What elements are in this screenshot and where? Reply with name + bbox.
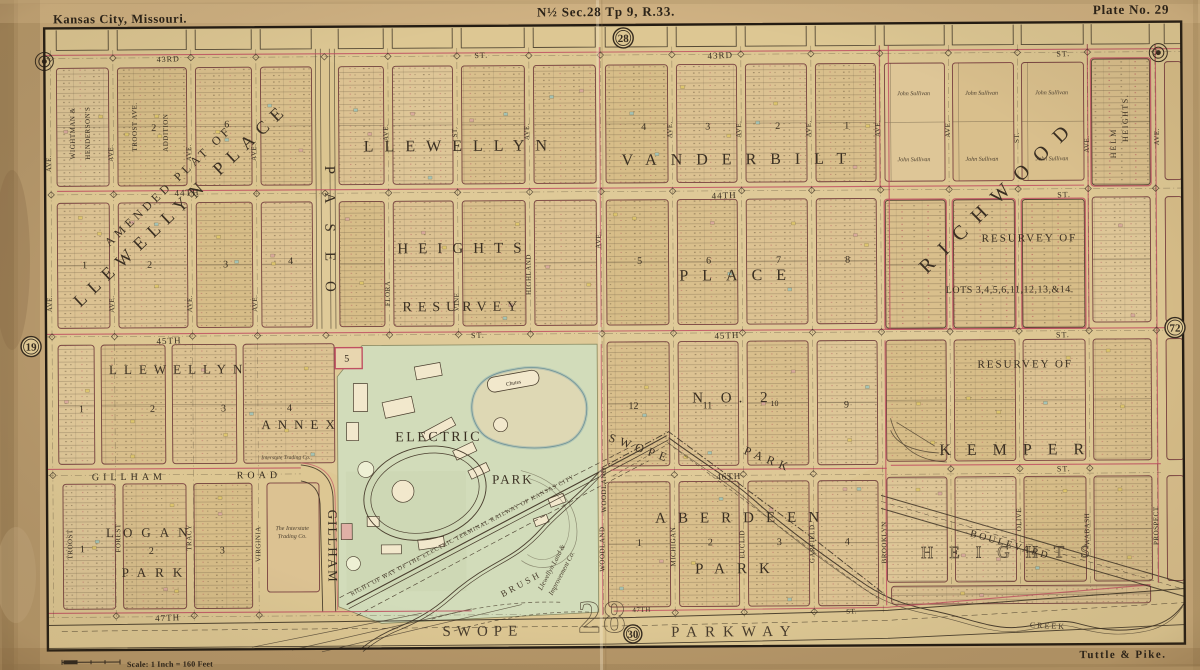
svg-text:10: 10 xyxy=(770,399,778,408)
svg-text:8: 8 xyxy=(845,255,850,266)
svg-text:47TH: 47TH xyxy=(155,612,180,623)
svg-text:AVE.: AVE. xyxy=(107,144,115,161)
svg-text:7: 7 xyxy=(776,255,781,266)
svg-text:AVE.: AVE. xyxy=(382,124,390,141)
svg-text:2: 2 xyxy=(708,537,713,548)
svg-text:HENDERSON'S: HENDERSON'S xyxy=(84,107,92,160)
svg-text:VINE: VINE xyxy=(453,293,461,312)
svg-text:PROSPECT: PROSPECT xyxy=(1152,506,1160,545)
svg-text:HELM: HELM xyxy=(1109,128,1118,159)
svg-text:28: 28 xyxy=(578,591,628,642)
svg-text:WABASH: WABASH xyxy=(1083,513,1091,546)
svg-text:TROOST AVE.: TROOST AVE. xyxy=(131,102,139,151)
svg-text:1: 1 xyxy=(79,404,84,415)
svg-text:AVE.: AVE. xyxy=(805,120,813,137)
svg-text:GARFIELD: GARFIELD xyxy=(808,524,816,563)
svg-text:28: 28 xyxy=(618,33,630,45)
svg-text:The Interstate: The Interstate xyxy=(275,526,309,532)
svg-text:RESURVEY OF: RESURVEY OF xyxy=(982,232,1078,245)
svg-text:PASEO: PASEO xyxy=(321,166,338,312)
svg-text:GILLHAM: GILLHAM xyxy=(92,472,166,483)
svg-text:PARK: PARK xyxy=(695,561,782,578)
svg-text:5: 5 xyxy=(637,256,642,267)
svg-text:AVE.: AVE. xyxy=(46,295,54,312)
svg-text:ANNEX: ANNEX xyxy=(261,417,342,432)
svg-text:3: 3 xyxy=(705,121,710,132)
svg-text:46TH: 46TH xyxy=(716,471,741,482)
svg-text:Plate No. 29: Plate No. 29 xyxy=(1093,2,1169,17)
svg-text:CREEK: CREEK xyxy=(1030,621,1067,632)
svg-text:MICHIGAN: MICHIGAN xyxy=(669,527,677,567)
svg-text:PLACE: PLACE xyxy=(679,267,800,285)
svg-text:WIGHTMAN &: WIGHTMAN & xyxy=(69,107,77,159)
svg-text:PARK: PARK xyxy=(492,471,534,486)
svg-text:LOTS 3,4,5,6,11,12,13,&14.: LOTS 3,4,5,6,11,12,13,&14. xyxy=(946,284,1074,296)
svg-text:6: 6 xyxy=(706,255,711,266)
svg-text:4: 4 xyxy=(288,256,293,267)
svg-text:John Sullivan: John Sullivan xyxy=(897,91,930,97)
svg-text:ST.: ST. xyxy=(1013,132,1021,143)
svg-text:N½ Sec.28 Tp 9, R.33.: N½ Sec.28 Tp 9, R.33. xyxy=(537,4,675,20)
svg-text:AVE.: AVE. xyxy=(250,144,258,161)
svg-text:72: 72 xyxy=(1169,323,1181,335)
svg-text:GILLHAM: GILLHAM xyxy=(325,510,340,584)
svg-text:AVE.: AVE. xyxy=(251,295,259,312)
svg-text:11: 11 xyxy=(703,400,713,411)
svg-text:12: 12 xyxy=(628,401,638,412)
svg-text:RESURVEY OF: RESURVEY OF xyxy=(977,358,1073,371)
svg-text:45TH: 45TH xyxy=(714,330,739,341)
svg-text:AVE.: AVE. xyxy=(186,295,194,312)
svg-text:Tuttle & Pike.: Tuttle & Pike. xyxy=(1080,649,1167,662)
svg-text:OLIVE: OLIVE xyxy=(1015,508,1023,532)
svg-text:AVE.: AVE. xyxy=(523,123,531,140)
svg-text:VIRGINIA: VIRGINIA xyxy=(254,526,262,562)
svg-text:1: 1 xyxy=(637,538,642,549)
svg-text:AVE.: AVE. xyxy=(1153,128,1161,145)
svg-text:2: 2 xyxy=(775,121,780,132)
svg-text:ADDITION: ADDITION xyxy=(162,114,170,152)
svg-text:KEMPER: KEMPER xyxy=(939,441,1100,459)
svg-text:SWOPE: SWOPE xyxy=(442,624,523,640)
svg-text:2: 2 xyxy=(150,404,155,415)
svg-text:44TH: 44TH xyxy=(174,187,199,198)
svg-text:4: 4 xyxy=(641,122,646,133)
svg-text:ST.: ST. xyxy=(846,607,857,615)
svg-text:3: 3 xyxy=(223,259,228,270)
svg-text:John Sullivan: John Sullivan xyxy=(966,157,999,163)
svg-text:1: 1 xyxy=(844,121,849,132)
svg-text:LLEWELLYN: LLEWELLYN xyxy=(109,361,249,377)
svg-text:Interstate Trading Co.: Interstate Trading Co. xyxy=(260,455,310,461)
svg-text:EUCLID: EUCLID xyxy=(738,530,746,559)
svg-text:2: 2 xyxy=(149,546,154,557)
svg-text:2: 2 xyxy=(151,123,156,134)
svg-text:AVE.: AVE. xyxy=(666,121,674,138)
svg-text:43RD: 43RD xyxy=(707,50,733,61)
svg-text:19: 19 xyxy=(26,342,38,354)
svg-text:ELECTRIC: ELECTRIC xyxy=(395,430,482,446)
svg-text:AVE.: AVE. xyxy=(45,155,53,172)
svg-text:ROAD: ROAD xyxy=(237,470,281,481)
svg-text:AVE.: AVE. xyxy=(108,295,116,312)
svg-text:44TH: 44TH xyxy=(711,190,736,201)
svg-text:4: 4 xyxy=(845,537,850,548)
svg-text:HEIGHTS.: HEIGHTS. xyxy=(1121,94,1130,142)
svg-text:AVE.: AVE. xyxy=(185,144,193,161)
svg-text:1: 1 xyxy=(80,544,85,555)
svg-text:AVE.: AVE. xyxy=(874,120,882,137)
svg-text:RESURVEY: RESURVEY xyxy=(402,300,523,316)
svg-text:FLORA: FLORA xyxy=(384,281,392,307)
svg-text:AVE.: AVE. xyxy=(735,121,743,138)
svg-text:AVE.: AVE. xyxy=(1083,135,1091,152)
svg-text:BROOKLYN: BROOKLYN xyxy=(880,521,888,563)
svg-text:ST.: ST. xyxy=(451,126,459,137)
svg-text:3: 3 xyxy=(777,537,782,548)
svg-text:ABERDEEN: ABERDEEN xyxy=(655,510,831,527)
svg-text:John Sullivan: John Sullivan xyxy=(965,91,998,97)
svg-text:FOREST: FOREST xyxy=(114,523,122,552)
svg-text:6: 6 xyxy=(224,119,229,130)
svg-text:43RD: 43RD xyxy=(157,54,180,64)
svg-text:TRACY: TRACY xyxy=(185,524,193,550)
svg-text:Kansas City, Missouri.: Kansas City, Missouri. xyxy=(53,12,187,27)
svg-text:Trading Co.: Trading Co. xyxy=(278,534,307,540)
svg-text:HEIGHTS: HEIGHTS xyxy=(397,241,531,258)
svg-text:VANDERBILT: VANDERBILT xyxy=(622,150,861,168)
svg-text:ST.: ST. xyxy=(474,51,488,61)
svg-text:47TH: 47TH xyxy=(632,605,651,614)
svg-text:PARKWAY: PARKWAY xyxy=(671,624,799,641)
svg-text:AVE.: AVE. xyxy=(594,231,602,248)
svg-text:45TH: 45TH xyxy=(156,335,181,346)
svg-text:3: 3 xyxy=(220,545,225,556)
svg-text:TROOST: TROOST xyxy=(66,529,74,559)
svg-text:ST.: ST. xyxy=(471,331,485,341)
svg-text:Scale: 1 Inch = 160 Feet: Scale: 1 Inch = 160 Feet xyxy=(127,659,213,669)
svg-text:2: 2 xyxy=(147,260,152,271)
svg-text:John Sullivan: John Sullivan xyxy=(1036,156,1069,162)
svg-text:4: 4 xyxy=(287,403,292,414)
svg-text:9: 9 xyxy=(844,400,849,411)
svg-text:ST.: ST. xyxy=(1056,330,1070,340)
svg-text:HIGHLAND: HIGHLAND xyxy=(525,254,533,295)
svg-text:PARK: PARK xyxy=(122,565,192,580)
svg-text:30: 30 xyxy=(627,629,639,641)
svg-text:ST.: ST. xyxy=(1057,190,1071,200)
svg-text:John Sullivan: John Sullivan xyxy=(1035,90,1068,96)
svg-text:ST.: ST. xyxy=(1057,464,1071,474)
svg-text:John Sullivan: John Sullivan xyxy=(898,157,931,163)
svg-text:AVE.: AVE. xyxy=(944,120,952,137)
svg-text:WOODLAND: WOODLAND xyxy=(600,467,608,512)
svg-text:3: 3 xyxy=(221,403,226,414)
svg-text:WOODLAND: WOODLAND xyxy=(598,526,606,571)
svg-text:1: 1 xyxy=(82,260,87,271)
svg-text:ST.: ST. xyxy=(1056,49,1070,59)
